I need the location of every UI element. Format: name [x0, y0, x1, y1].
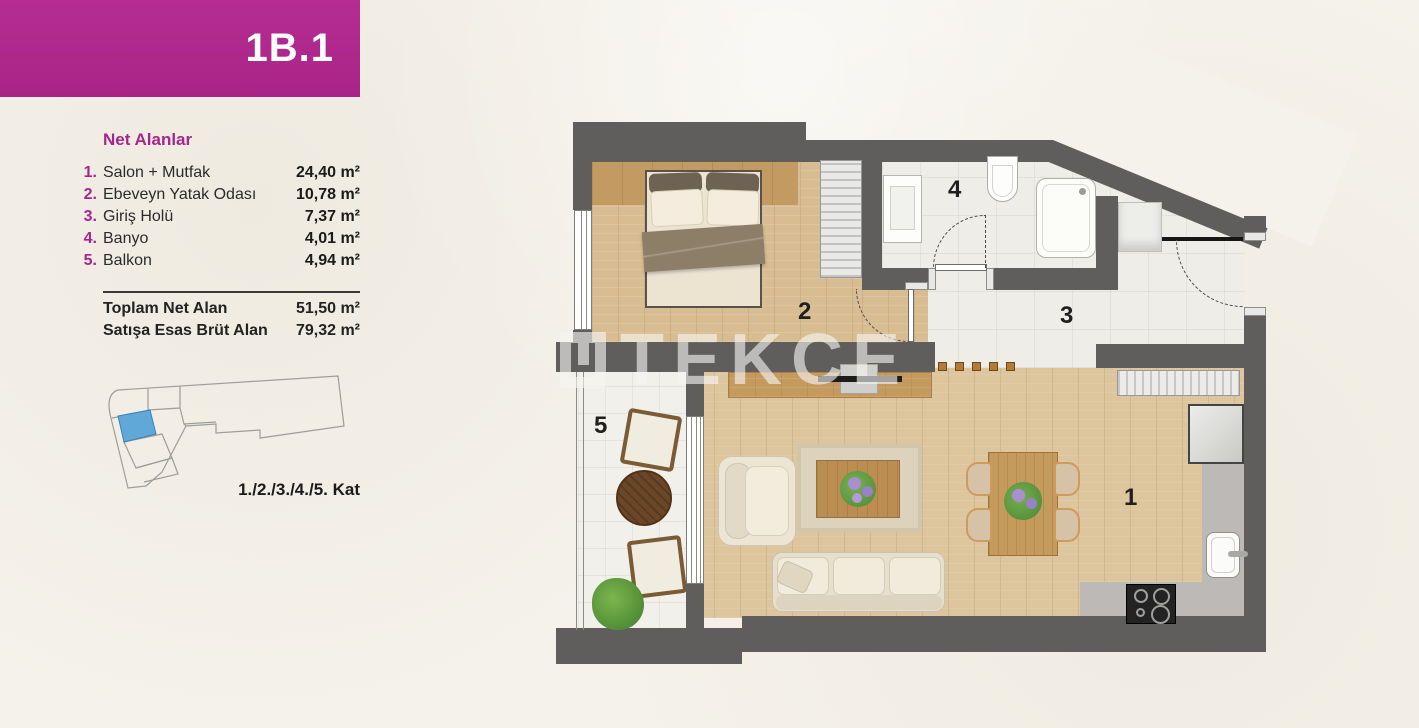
radiator-living [1117, 370, 1240, 396]
wall-living-bottom [742, 616, 1266, 652]
wall-left-upper [573, 122, 592, 210]
wall-right [1244, 307, 1266, 652]
entry-door-jamb [1244, 307, 1266, 316]
building-footprint-sketch [88, 374, 358, 489]
area-row-value: 24,40 m² [296, 162, 360, 184]
area-row: 1. Salon + Mutfak 24,40 m² [75, 162, 360, 184]
threshold-block [989, 362, 998, 371]
balcony-chair [620, 408, 683, 473]
washing-machine-lid [890, 186, 915, 230]
unit-highlight [118, 410, 156, 442]
faucet [1228, 551, 1248, 557]
toilet [987, 156, 1018, 202]
dining-chair [1054, 462, 1080, 496]
area-row-value: 4,94 m² [305, 250, 360, 272]
threshold-block [972, 362, 981, 371]
area-row: 3. Giriş Holü 7,37 m² [75, 206, 360, 228]
fridge [1188, 404, 1244, 464]
area-row-number: 2. [75, 184, 97, 206]
net-areas-list: Net Alanlar 1. Salon + Mutfak 24,40 m² 2… [75, 130, 360, 272]
bed-pillow-left [650, 189, 704, 228]
bedroom-wardrobe [820, 160, 862, 278]
cooktop [1126, 584, 1176, 624]
area-row-number: 5. [75, 250, 97, 272]
sofa-back [776, 595, 942, 610]
wall-balcony-bottom [556, 628, 742, 664]
room-label-salon: 1 [1124, 484, 1137, 512]
watermark-logo-icon [560, 332, 606, 388]
total-label: Satışa Esas Brüt Alan [103, 320, 296, 342]
totals-divider [103, 291, 360, 293]
totals-block: Toplam Net Alan 51,50 m² Satışa Esas Brü… [75, 298, 360, 342]
unit-code-banner: 1B.1 [0, 0, 360, 97]
area-row: 2. Ebeveyn Yatak Odası 10,78 m² [75, 184, 360, 206]
bath-door-jamb [928, 268, 936, 290]
area-row-number: 3. [75, 206, 97, 228]
plant-flowers [1012, 489, 1025, 502]
wall-bedroom-top [573, 122, 806, 162]
unit-code: 1B.1 [246, 26, 335, 71]
total-row: Toplam Net Alan 51,50 m² [75, 298, 360, 320]
dining-chair [1054, 508, 1080, 542]
area-row-label: Giriş Holü [103, 206, 305, 228]
threshold-block [1006, 362, 1015, 371]
total-value: 51,50 m² [296, 298, 360, 320]
threshold-block [938, 362, 947, 371]
area-row: 5. Balkon 4,94 m² [75, 250, 360, 272]
area-row-label: Banyo [103, 228, 305, 250]
balcony-sliding-door [686, 416, 704, 584]
total-row: Satışa Esas Brüt Alan 79,32 m² [75, 320, 360, 342]
shower-tray [1036, 178, 1096, 258]
washing-machine [883, 175, 922, 243]
plant-flowers [852, 493, 862, 503]
sofa-cushion [889, 557, 941, 595]
dining-chair [966, 462, 992, 496]
floors-label: 1./2./3./4./5. Kat [170, 480, 360, 500]
wall-balcony-door-lower [686, 584, 704, 630]
area-row-label: Salon + Mutfak [103, 162, 296, 184]
watermark-text: TEKCE [620, 324, 909, 396]
hall-cabinet [1118, 202, 1162, 252]
area-row-label: Balkon [103, 250, 305, 272]
area-row-value: 7,37 m² [305, 206, 360, 228]
armchair [718, 456, 796, 546]
bed-blanket [642, 224, 765, 272]
threshold-block [955, 362, 964, 371]
area-row-number: 1. [75, 162, 97, 184]
balcony-plant [592, 578, 644, 630]
area-row-value: 4,01 m² [305, 228, 360, 250]
net-areas-title: Net Alanlar [103, 130, 360, 150]
wall-living-top-right [1096, 344, 1245, 368]
area-row-label: Ebeveyn Yatak Odası [103, 184, 296, 206]
watermark: TEKCE [560, 324, 909, 396]
shower-drain [1079, 188, 1086, 195]
area-row: 4. Banyo 4,01 m² [75, 228, 360, 250]
bed-pillow-right [706, 189, 759, 227]
room-label-bath: 4 [948, 176, 961, 204]
sofa [772, 552, 945, 612]
toilet-bowl [992, 165, 1013, 197]
room-label-balcony: 5 [594, 412, 607, 440]
plant-flowers [1026, 498, 1037, 509]
plant-flowers [848, 477, 861, 490]
total-label: Toplam Net Alan [103, 298, 296, 320]
bath-door-jamb [986, 268, 994, 290]
floorplan-sheet: 1B.1 Net Alanlar 1. Salon + Mutfak 24,40… [0, 0, 1419, 728]
balcony-railing [576, 372, 584, 630]
bath-door-open-position [985, 215, 989, 268]
area-row-number: 4. [75, 228, 97, 250]
plant-flowers [862, 486, 873, 497]
armchair-seat [745, 466, 789, 536]
bedroom-window [574, 210, 592, 330]
wall-bath-right [1096, 196, 1118, 290]
entry-door-jamb [1244, 232, 1266, 241]
total-value: 79,32 m² [296, 320, 360, 342]
balcony-table [616, 470, 672, 526]
wall-bath-bottom-right [987, 268, 1096, 290]
area-row-value: 10,78 m² [296, 184, 360, 206]
sofa-cushion [833, 557, 885, 595]
dining-chair [966, 508, 992, 542]
room-label-hall: 3 [1060, 302, 1073, 330]
